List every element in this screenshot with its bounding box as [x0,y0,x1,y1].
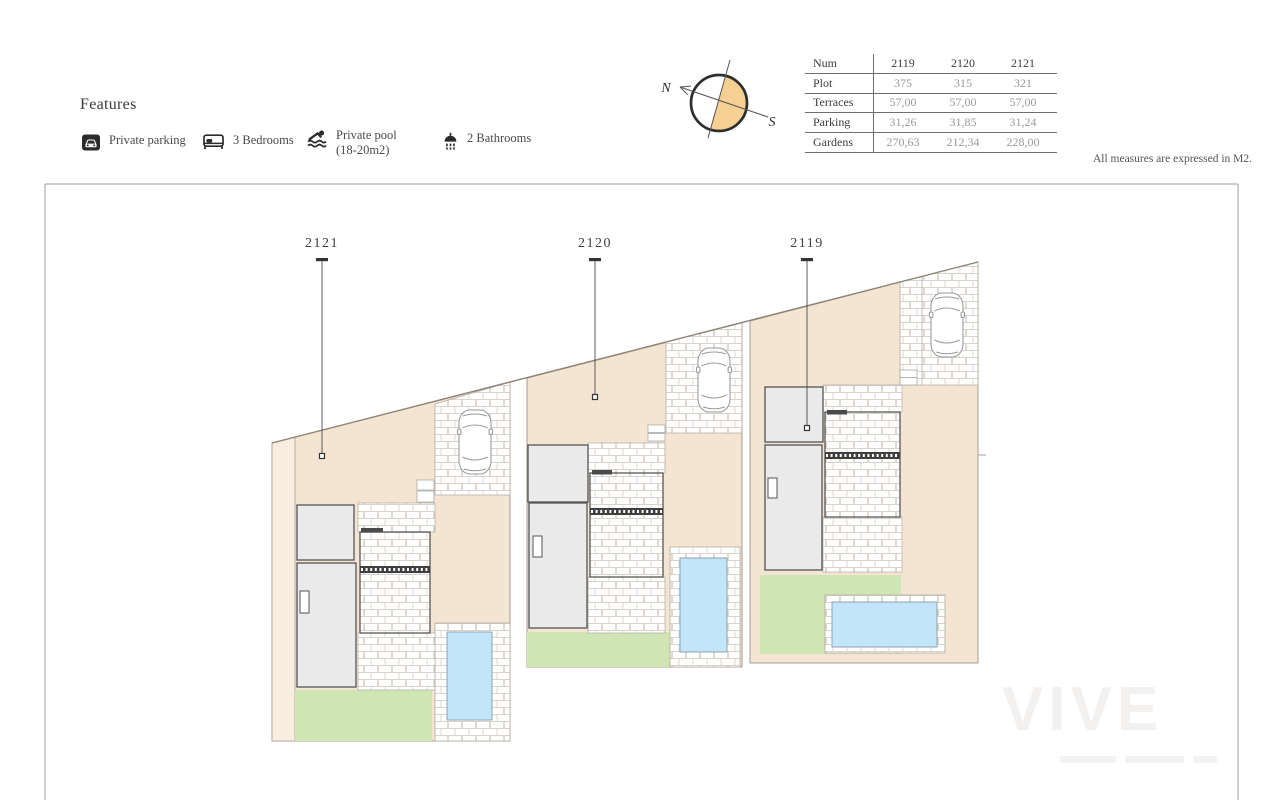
plot-2121-entry-steps [417,480,434,502]
plot-2121-step-bar [361,528,383,532]
plot-2119 [750,262,986,663]
plot-2120-garden [527,632,670,667]
plot-2121-pool [447,632,492,720]
plot-2121-building-lower [297,563,356,687]
plot-2121-garden [295,690,432,741]
plot-2120-door [533,536,542,557]
plot-2121-marker [320,454,325,459]
plot-2119-terrace-upper [823,385,902,412]
plot-2121-terrace-upper [358,503,435,532]
plot-2120-leader-tick [589,258,601,261]
plot-2121-building-upper [297,505,354,560]
plot-2119-terrace-box [825,412,900,517]
plot-2121-terrace-box [360,532,430,633]
compass-south-label: S [769,115,776,130]
plot-2120 [527,323,742,667]
plot-2119-pergola-band [825,452,900,459]
plot-2119-entry-steps [900,370,917,385]
plot-2119-marker [805,426,810,431]
plot-2119-step-bar [827,410,847,415]
plot-2121 [272,382,510,741]
compass-rose: N S [660,60,775,138]
plot-2120-terrace-lower [588,577,665,633]
plot-2119-building-upper [765,387,823,442]
plot-2121-pergola-band [360,566,430,573]
plot-2120-pool [680,558,727,652]
plot-2119-door [768,478,777,498]
plot-2120-pergola-band [590,508,663,515]
compass-north-label: N [660,81,671,96]
plot-2119-leader-tick [801,258,813,261]
plot-2119-building-lower [765,445,822,570]
plot-2119-pool [832,602,937,647]
plot-2121-terrace-lower [358,633,435,690]
plot-2120-building-lower [529,503,587,628]
plot-2119-terrace-lower [823,517,902,572]
plot-2120-car [697,348,732,412]
site-plan: N S [0,0,1280,800]
plot-2121-car [458,410,493,474]
plot-2120-label: 2120 [578,236,612,251]
plot-2121-label: 2121 [305,236,339,251]
plot-2119-car [930,293,965,357]
plot-2121-leader-tick [316,258,328,261]
plot-2120-step-bar [592,470,612,475]
plot-2121-door [300,591,309,613]
plot-2120-marker [593,395,598,400]
plot-2119-label: 2119 [790,236,823,251]
plot-2120-terrace-box [590,473,663,577]
brochure-page: VIVE Features Private parking [0,0,1280,800]
plot-2120-terrace-upper [588,443,665,473]
plot-2121-side-strip [272,437,295,741]
plot-2120-building-upper [528,445,588,502]
